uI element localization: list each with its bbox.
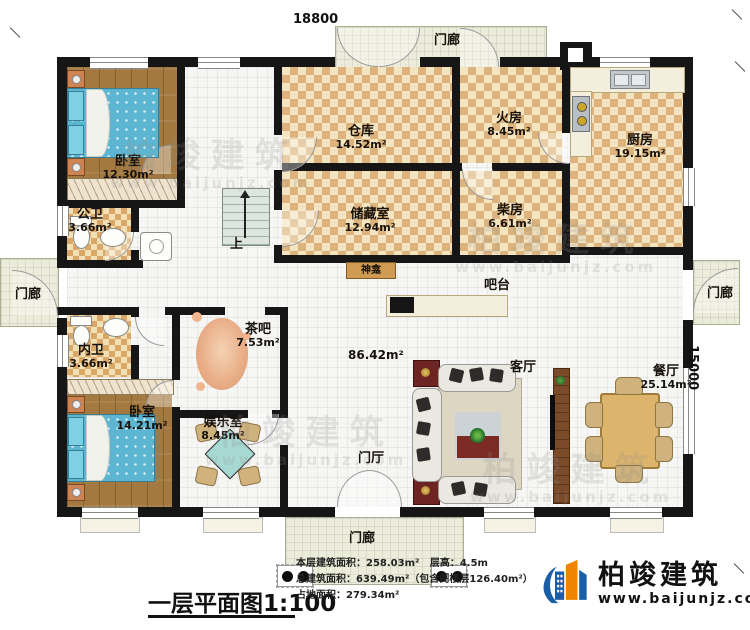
wall	[570, 247, 693, 255]
tv-cabinet	[553, 368, 570, 504]
dimension-tick	[10, 27, 21, 38]
label-porch-top: 门廊	[417, 34, 477, 48]
sofa-pillow	[416, 421, 431, 436]
end-table	[413, 360, 440, 387]
chimney-flue	[568, 48, 583, 62]
coffee-table	[455, 412, 501, 460]
dimension-tick	[732, 9, 743, 20]
room-label-foyer: 门厅	[341, 452, 401, 466]
window	[610, 507, 662, 519]
window	[203, 507, 259, 519]
room-label-wood-room: 柴房6.61m²	[474, 204, 546, 230]
nightstand	[67, 70, 85, 88]
wall	[177, 57, 185, 205]
rug-dot	[192, 312, 202, 322]
bathroom-sink	[103, 318, 129, 337]
wall	[274, 170, 282, 210]
plan-title-underline	[148, 615, 295, 618]
dimension-width: 18800	[293, 12, 338, 27]
nightstand-lamp	[72, 75, 81, 84]
brand-name: 柏竣建筑	[598, 561, 750, 591]
wall	[562, 163, 570, 263]
wall	[282, 163, 462, 171]
end-table-plant	[421, 368, 430, 377]
window	[198, 57, 240, 69]
wall	[452, 67, 460, 163]
bed	[67, 88, 159, 158]
window-sill	[80, 517, 140, 533]
room-label-living: 客厅	[493, 361, 553, 375]
floor-plan-page: { "dimensions": { "width": "18800", "hei…	[0, 0, 750, 630]
wall	[280, 445, 288, 507]
rug-dot	[196, 382, 205, 391]
end-table-plant	[421, 486, 430, 495]
washer-door	[149, 239, 164, 254]
stats-line1: 本层建筑面积：258.03m² 层高：4.5m	[296, 556, 546, 572]
label-porch-left: 门廊	[2, 288, 54, 302]
wall	[57, 57, 67, 268]
dining-chair	[615, 465, 643, 483]
window-sill	[203, 517, 263, 533]
nightstand-lamp	[72, 400, 81, 409]
room-label-bedroom2: 卧室14.21m²	[106, 406, 178, 432]
bed-pillow	[68, 450, 84, 479]
nightstand	[67, 484, 85, 501]
stats-line3: 占地面积：279.34m²	[296, 588, 546, 604]
window-sill	[610, 517, 664, 533]
shrine-cabinet: 神龛	[346, 262, 396, 279]
window-sill	[484, 517, 536, 533]
wall	[131, 345, 139, 379]
wall	[172, 307, 180, 380]
dimension-tick	[735, 61, 746, 72]
wall	[131, 307, 139, 317]
kitchen-sink	[610, 70, 650, 89]
wall	[57, 260, 143, 268]
wall	[274, 255, 570, 263]
brand-logo-icon	[540, 558, 590, 610]
nightstand-lamp	[72, 488, 81, 497]
wall	[420, 57, 460, 67]
wall	[274, 57, 282, 135]
wall	[57, 307, 137, 315]
stove-burner	[577, 116, 587, 126]
bed-pillow	[68, 125, 84, 155]
brand-text: 柏竣建筑 www.baijunjz.com	[598, 561, 750, 607]
nightstand	[67, 396, 85, 413]
stove-burner	[577, 102, 587, 112]
room-label-tea-bar: 茶吧7.53m²	[222, 323, 294, 349]
wall	[562, 57, 570, 133]
brand-url: www.baijunjz.com	[598, 591, 750, 607]
bedroom1-wardrobe	[67, 178, 179, 202]
stairs-arrow	[244, 196, 246, 238]
dining-chair	[585, 402, 603, 428]
wall	[265, 307, 288, 315]
bed-blanket	[86, 89, 110, 157]
sofa-pillow	[469, 367, 484, 382]
room-label-dining: 餐厅25.14m²	[625, 365, 707, 391]
dining-chair	[585, 436, 603, 462]
room-label-rec-room: 娱乐室8.45m²	[182, 416, 264, 442]
room-label-fire-room: 火房8.45m²	[473, 112, 545, 138]
dining-chair	[655, 436, 673, 462]
nightstand	[67, 158, 85, 176]
tv-screen	[550, 395, 555, 450]
dining-chair	[655, 402, 673, 428]
sink-basin	[631, 74, 646, 86]
kitchen-stove	[572, 96, 590, 132]
sink-basin	[614, 74, 629, 86]
room-label-storage: 储藏室12.94m²	[330, 208, 410, 234]
tv-plant	[556, 376, 565, 385]
room-label-inner-bath: 内卫3.66m²	[58, 344, 124, 370]
washing-machine	[140, 232, 172, 261]
label-bar-counter: 吧台	[467, 279, 527, 293]
bed-pillow	[68, 417, 84, 446]
sofa-pillow	[451, 481, 466, 496]
stairs-arrowhead	[240, 190, 250, 198]
sofa-pillow	[416, 447, 431, 462]
room-label-warehouse: 仓库14.52m²	[325, 125, 397, 151]
sofa-pillow	[473, 482, 488, 497]
window	[484, 507, 534, 519]
window	[82, 507, 138, 519]
wall	[131, 208, 139, 232]
room-label-bedroom1: 卧室12.30m²	[92, 155, 164, 181]
coffee-table-plant	[470, 428, 485, 443]
stats-block: 本层建筑面积：258.03m² 层高：4.5m 总建筑面积：639.49m²（包…	[296, 556, 546, 604]
dining-table	[600, 393, 660, 469]
bed-pillow	[68, 91, 84, 121]
label-stairs-up: 上	[230, 238, 243, 252]
room-label-pub-bath: 公卫3.66m²	[58, 208, 122, 234]
label-porch-bottom: 门廊	[332, 532, 392, 546]
room-label-kitchen: 厨房19.15m²	[604, 134, 676, 160]
brand-logo: 柏竣建筑 www.baijunjz.com	[540, 558, 750, 610]
end-table	[413, 478, 440, 505]
window	[683, 168, 695, 206]
wall	[452, 171, 460, 263]
nightstand-lamp	[72, 163, 81, 172]
wall	[492, 163, 570, 171]
label-porch-right: 门廊	[694, 287, 746, 301]
stats-line2: 总建筑面积：639.49m²（包含阁楼层126.40m²）	[296, 572, 546, 588]
label-great-room-area: 86.42m²	[348, 349, 404, 362]
window	[90, 57, 148, 69]
bar-counter-block	[390, 297, 414, 313]
